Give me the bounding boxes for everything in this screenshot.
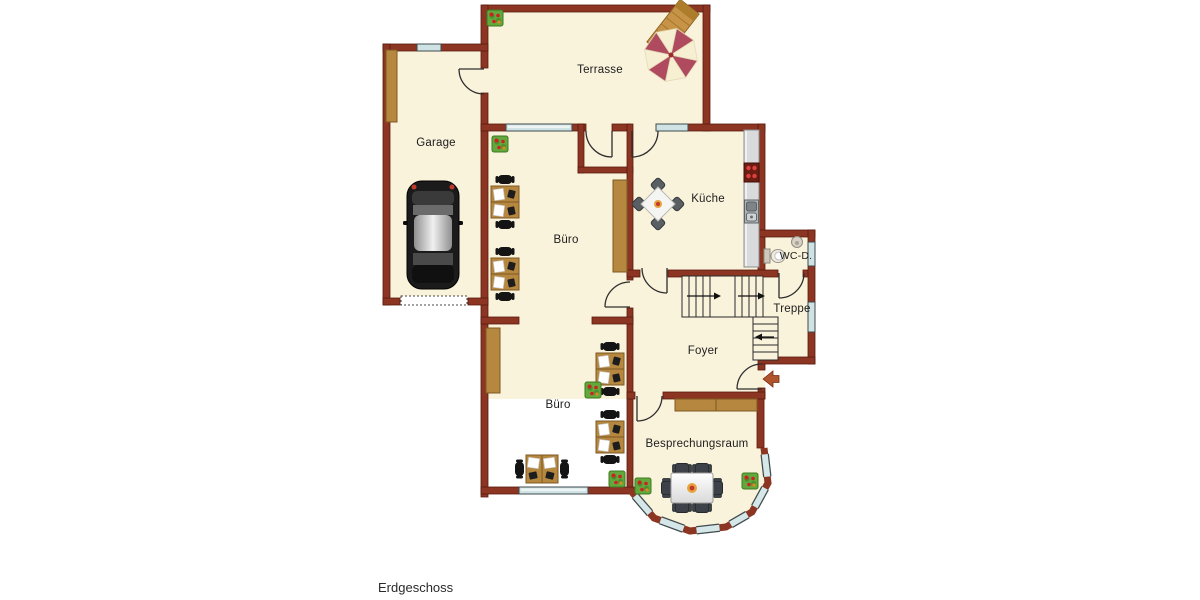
garage-window bbox=[417, 44, 441, 51]
plant-icon bbox=[585, 382, 601, 398]
office2-cabinet bbox=[486, 328, 500, 393]
meeting-chair-icon bbox=[673, 464, 692, 474]
washbasin-icon bbox=[792, 237, 803, 248]
room-label-terrasse: Terrasse bbox=[555, 64, 645, 76]
kitchen-window bbox=[656, 124, 688, 131]
room-label-treppe: Treppe bbox=[760, 303, 824, 315]
office-cabinet bbox=[613, 180, 627, 272]
sink-icon bbox=[745, 200, 759, 223]
room-label-garage: Garage bbox=[400, 137, 472, 149]
meeting-chair-icon bbox=[662, 479, 672, 498]
room-label-wc: WC-D. bbox=[770, 250, 822, 262]
floorplan-page: Terrasse Garage Büro Küche WC-D. Treppe … bbox=[0, 0, 1200, 600]
floor-title: Erdgeschoss bbox=[378, 580, 453, 595]
desk-group-icon bbox=[515, 455, 569, 483]
room-label-kueche: Küche bbox=[671, 193, 745, 205]
plant-icon bbox=[635, 478, 651, 494]
desk-group-icon bbox=[596, 410, 624, 464]
room-label-foyer: Foyer bbox=[666, 345, 740, 357]
garage-door bbox=[401, 296, 467, 305]
floorplan-drawing bbox=[0, 0, 1200, 600]
plant-icon bbox=[742, 473, 758, 489]
meeting-chair-icon bbox=[713, 479, 723, 498]
room-label-buero-top: Büro bbox=[529, 234, 603, 246]
meeting-chair-icon bbox=[693, 464, 712, 474]
plant-icon bbox=[487, 10, 503, 26]
car-icon bbox=[403, 181, 463, 289]
stove-icon bbox=[744, 163, 759, 182]
room-label-buero-bottom: Büro bbox=[521, 399, 595, 411]
meeting-chair-icon bbox=[673, 503, 692, 513]
kitchen-counter bbox=[744, 130, 759, 267]
meeting-chair-icon bbox=[693, 503, 712, 513]
entrance-arrow-icon bbox=[763, 371, 779, 387]
garage-cabinet bbox=[386, 50, 397, 122]
plant-icon bbox=[609, 471, 625, 487]
room-label-besprechungsraum: Besprechungsraum bbox=[627, 438, 767, 450]
plant-icon bbox=[492, 136, 508, 152]
